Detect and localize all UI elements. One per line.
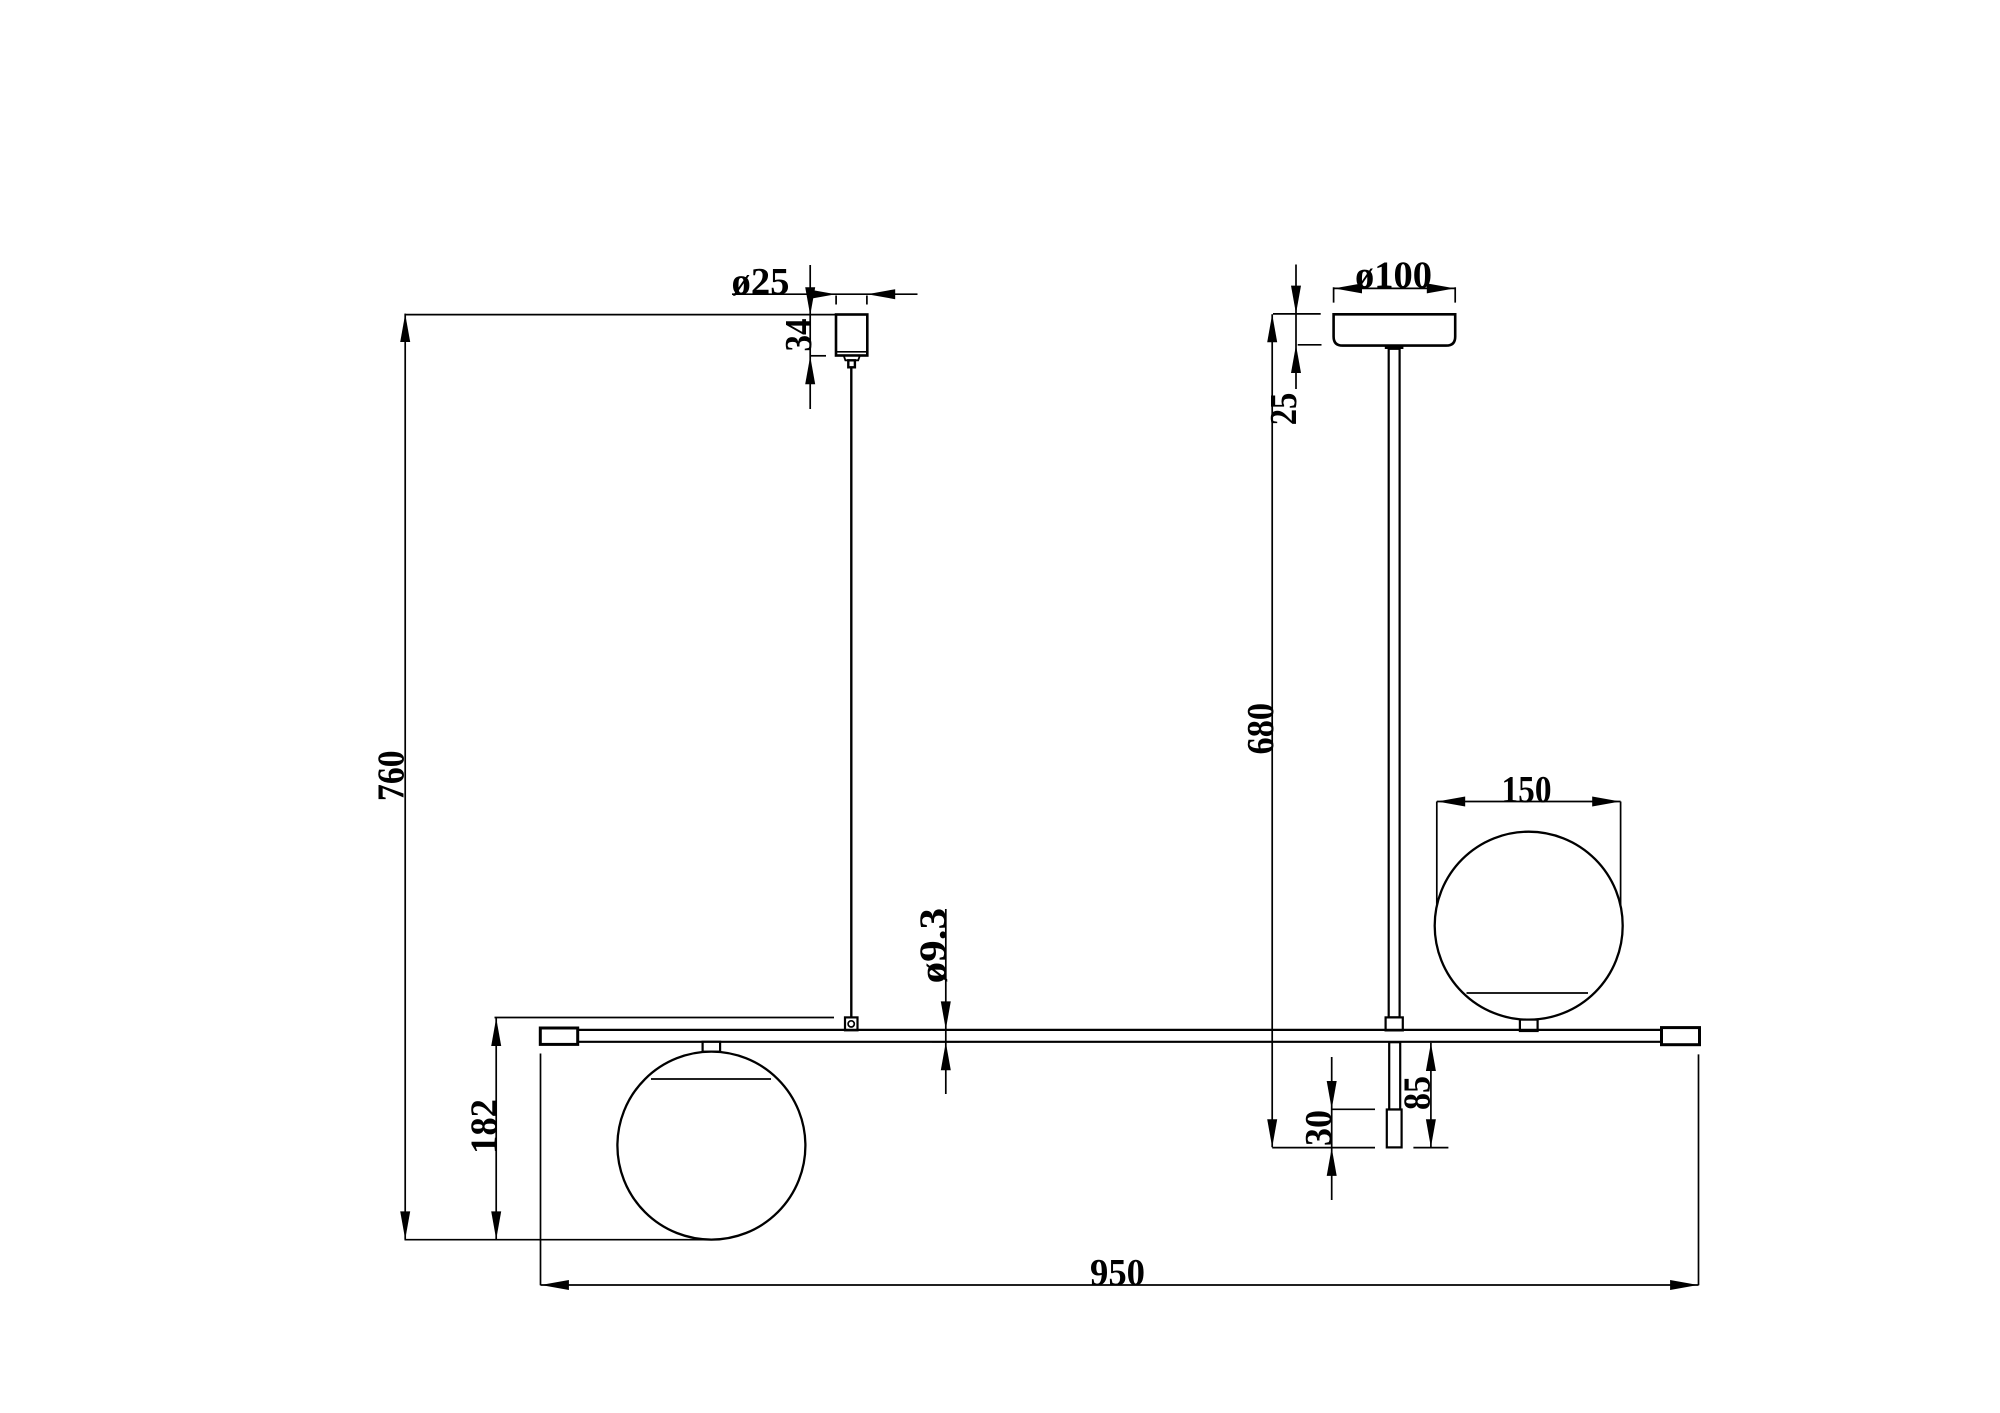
svg-text:760: 760 [371, 750, 413, 801]
svg-text:34: 34 [778, 319, 820, 352]
svg-text:85: 85 [1397, 1076, 1439, 1110]
svg-text:680: 680 [1240, 703, 1282, 755]
svg-text:ø9.3: ø9.3 [913, 908, 955, 983]
svg-text:25: 25 [1263, 393, 1305, 426]
svg-text:30: 30 [1298, 1110, 1340, 1146]
svg-text:950: 950 [1090, 1252, 1145, 1294]
svg-text:ø25: ø25 [732, 261, 790, 303]
svg-text:ø100: ø100 [1355, 255, 1432, 297]
svg-text:182: 182 [464, 1099, 506, 1154]
svg-text:150: 150 [1502, 769, 1552, 811]
